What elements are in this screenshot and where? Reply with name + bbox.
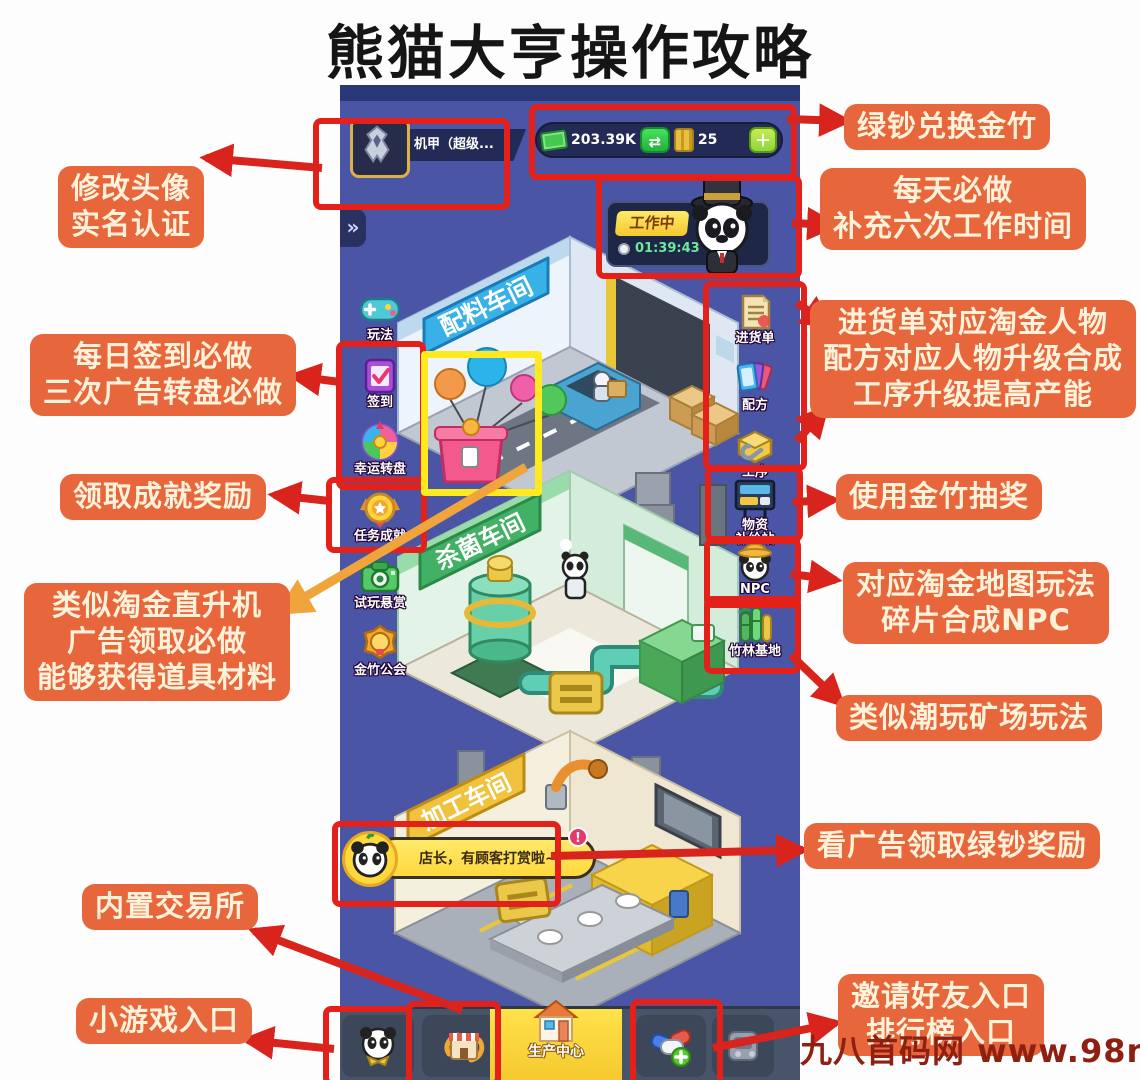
annotation-helicopter-ads: 类似淘金直升机 广告领取必做 能够获得道具材料: [24, 583, 290, 701]
production-center-label: 生产中心: [490, 1041, 622, 1061]
sidebar-item-guild[interactable]: 金竹公会: [345, 622, 415, 678]
highlight-bubble-box: [332, 821, 561, 907]
highlight-nav-shop-box: [406, 1001, 501, 1080]
highlight-gift-yellow-box: [421, 351, 542, 496]
floor-sterilize-workshop[interactable]: 杀菌车间: [398, 471, 738, 755]
highlight-nav-panda-box: [323, 1006, 412, 1080]
gamepad-icon: [358, 287, 402, 331]
annotation-daily-work: 每天必做 补充六次工作时间: [820, 168, 1086, 250]
nav-production-center-button[interactable]: 生产中心: [490, 1009, 622, 1080]
highlight-right-icons-box: [703, 281, 807, 471]
guild-emblem-icon: [358, 622, 402, 666]
page-title: 熊猫大亨操作攻略: [0, 6, 1140, 90]
annotation-minigame-entry: 小游戏入口: [76, 998, 252, 1044]
annotation-npc-map: 对应淘金地图玩法 碎片合成NPC: [843, 562, 1109, 644]
highlight-achievement-box: [326, 477, 427, 553]
highlight-working-panda-box: [596, 175, 802, 279]
annotation-exchange-bamboo: 绿钞兑换金竹: [844, 104, 1050, 150]
guide-canvas: 熊猫大亨操作攻略 配料车间: [0, 0, 1140, 1080]
bounty-camera-icon: [358, 555, 402, 599]
annotation-builtin-exchange: 内置交易所: [82, 884, 258, 930]
annotation-daily-signin: 每日签到必做 三次广告转盘必做: [30, 334, 296, 416]
sidebar-item-gameplay[interactable]: 玩法: [345, 287, 415, 343]
expand-chevron-button[interactable]: »: [340, 209, 366, 247]
annotation-bamboo-lottery: 使用金竹抽奖: [836, 474, 1042, 520]
highlight-signin-wheel-box: [336, 341, 426, 490]
annotation-ad-cash-reward: 看广告领取绿钞奖励: [804, 823, 1100, 869]
house-icon: [532, 999, 580, 1043]
highlight-supply-box: [705, 466, 803, 542]
watermark: 九八首码网 www.98ni.com: [800, 1026, 1140, 1072]
sidebar-item-demo-bounty[interactable]: 试玩悬赏: [345, 555, 415, 611]
annotation-modify-avatar: 修改头像 实名认证: [58, 166, 204, 248]
highlight-bamboo-box: [704, 596, 801, 674]
annotation-mine-gameplay: 类似潮玩矿场玩法: [836, 695, 1102, 741]
highlight-nav-handshake-box: [630, 999, 723, 1080]
annotation-achievement-reward: 领取成就奖励: [60, 474, 266, 520]
highlight-currency-box: [529, 104, 797, 180]
highlight-avatar-box: [313, 118, 510, 210]
alert-badge: !: [568, 827, 588, 847]
arcade-machine-icon: [723, 1026, 763, 1066]
annotation-workflow-upgrade: 进货单对应淘金人物 配方对应人物升级合成 工序升级提高产能: [810, 300, 1136, 418]
